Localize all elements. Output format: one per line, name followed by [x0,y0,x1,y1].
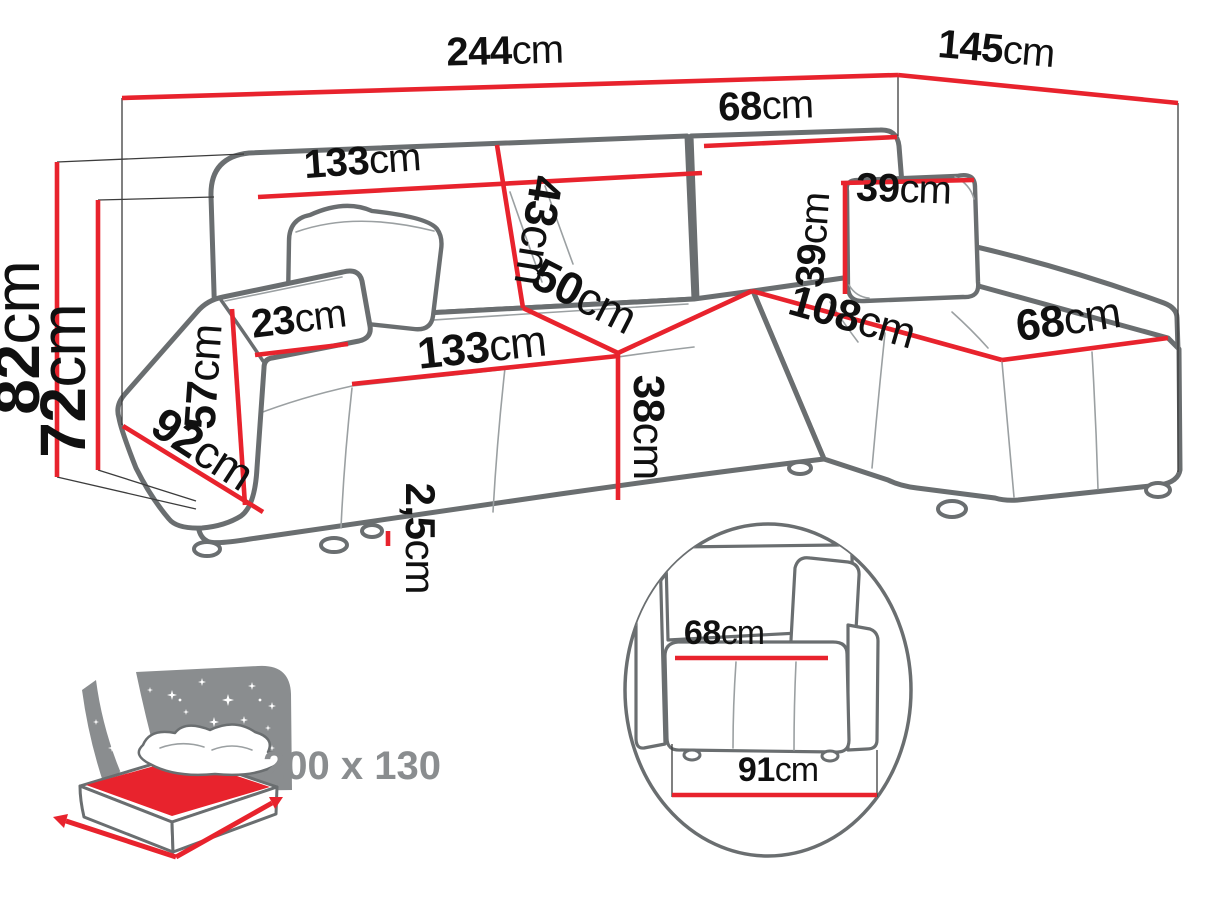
dim-label-width-total: 244cm [446,27,564,74]
sofa-bed-icon: 200 x 130 [53,666,441,857]
side-view-drawing [636,545,878,761]
diagram-stage: 244cm 145cm 82cm 72cm 133cm 68cm 43cm 50… [0,0,1214,911]
dim-label-backrest-right-width: 68cm [717,82,813,129]
dim-label-height-backrest: 72cm [27,304,99,458]
dim-label-seat-front-height: 38cm [624,375,673,480]
dim-label-pillow-width: 39cm [855,165,951,212]
dim-label-depth-total: 145cm [936,22,1056,76]
side-detail-inset: 68cm 91cm [625,524,911,856]
side-arm-outer-panel [848,625,878,750]
dim-label-leg-height: 2,5cm [397,483,444,594]
side-leg [822,751,838,761]
dim-label-detail-total-depth: 91cm [738,751,818,789]
dim-label-detail-seat-depth: 68cm [684,614,764,652]
sleeping-area-label: 200 x 130 [263,744,441,788]
side-back-panel [636,552,665,748]
dim-label-backrest-left-width: 133cm [302,135,421,187]
sofa-dimension-diagram: 244cm 145cm 82cm 72cm 133cm 68cm 43cm 50… [0,0,1214,911]
dim-line-depth-total [898,75,1178,103]
dim-label-pillow-height: 39cm [788,191,839,289]
duvet [139,724,280,774]
side-leg [684,750,700,760]
